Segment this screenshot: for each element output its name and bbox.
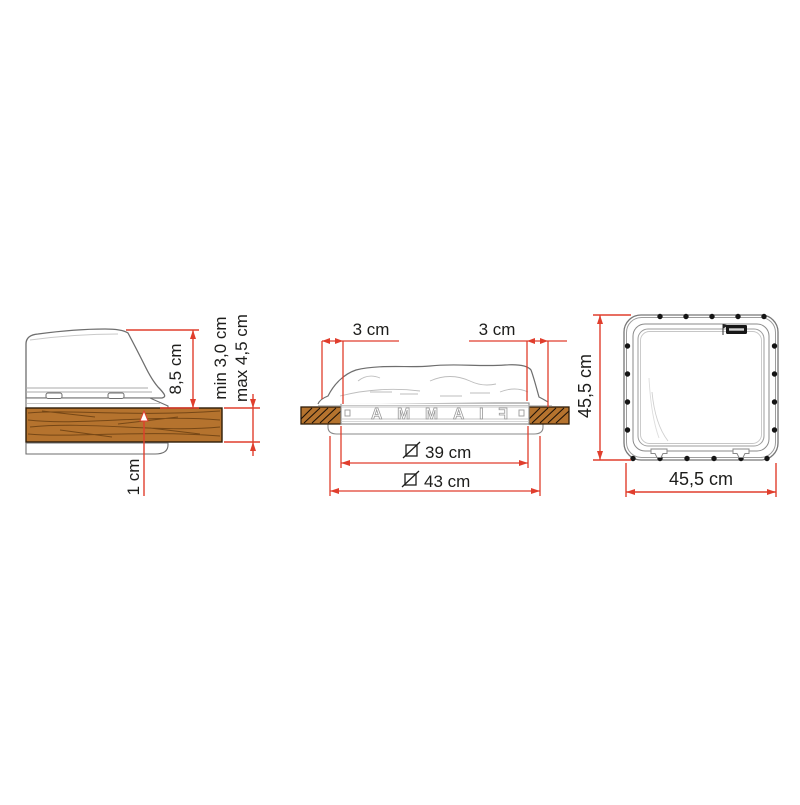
frame-height-label: 45,5 cm bbox=[575, 354, 595, 418]
roof-section-right bbox=[529, 407, 569, 424]
view-side-section: 8,5 cm min 3,0 cm max 4,5 cm 1 cm bbox=[26, 314, 260, 496]
fiamma-logo-badge bbox=[723, 324, 747, 335]
view-front-section: FIAMMA 3 cm 3 cm bbox=[301, 320, 569, 496]
cutout-inner-label: 39 cm bbox=[425, 443, 471, 462]
roof-vent-dimension-diagram: 8,5 cm min 3,0 cm max 4,5 cm 1 cm bbox=[0, 0, 800, 800]
flange-right-label: 3 cm bbox=[479, 320, 516, 339]
interior-trim bbox=[328, 424, 543, 434]
roof-section-left bbox=[301, 407, 341, 424]
roof-panel-wood bbox=[26, 408, 222, 442]
frame-outline bbox=[624, 315, 778, 460]
vent-flange bbox=[26, 398, 168, 408]
cutout-outer-symbol slashed-square-icon bbox=[402, 471, 419, 487]
frame-depth-label: 1 cm bbox=[124, 459, 143, 496]
frame-width-label: 45,5 cm bbox=[669, 469, 733, 489]
vent-base-body: FIAMMA bbox=[341, 403, 529, 424]
cutout-outer-label: 43 cm bbox=[424, 472, 470, 491]
roof-thickness-max-label: max 4,5 cm bbox=[232, 314, 251, 402]
technical-drawing-canvas: 8,5 cm min 3,0 cm max 4,5 cm 1 cm bbox=[0, 0, 800, 800]
flange-left-label: 3 cm bbox=[353, 320, 390, 339]
cutout-inner-symbol slashed-square-icon bbox=[403, 442, 420, 458]
flange-clip-left bbox=[46, 393, 62, 399]
dimension-roof-thickness bbox=[224, 394, 260, 456]
flange-clip-right bbox=[108, 393, 124, 399]
view-interior-frame: 45,5 cm 45,5 cm bbox=[575, 314, 778, 497]
dome-height-label: 8,5 cm bbox=[166, 343, 185, 394]
vent-dome-front bbox=[318, 365, 548, 404]
roof-thickness-min-label: min 3,0 cm bbox=[211, 316, 230, 399]
interior-frame-lip bbox=[26, 443, 168, 454]
